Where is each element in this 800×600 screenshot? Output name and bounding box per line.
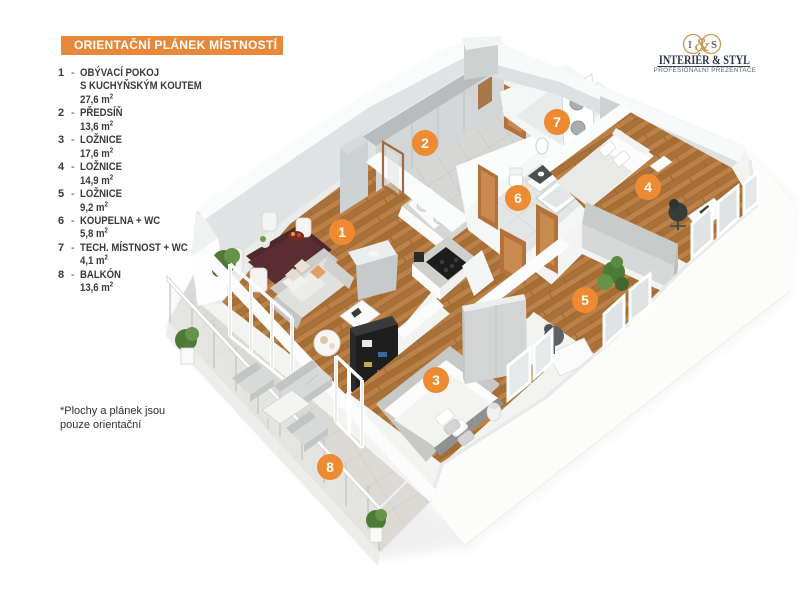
svg-text:7: 7	[553, 114, 561, 130]
svg-text:1: 1	[338, 224, 346, 240]
svg-text:5: 5	[581, 292, 589, 308]
svg-text:6: 6	[514, 190, 522, 206]
svg-text:4: 4	[644, 179, 652, 195]
svg-text:2: 2	[421, 135, 429, 151]
svg-text:8: 8	[326, 459, 334, 475]
svg-text:3: 3	[432, 372, 440, 388]
